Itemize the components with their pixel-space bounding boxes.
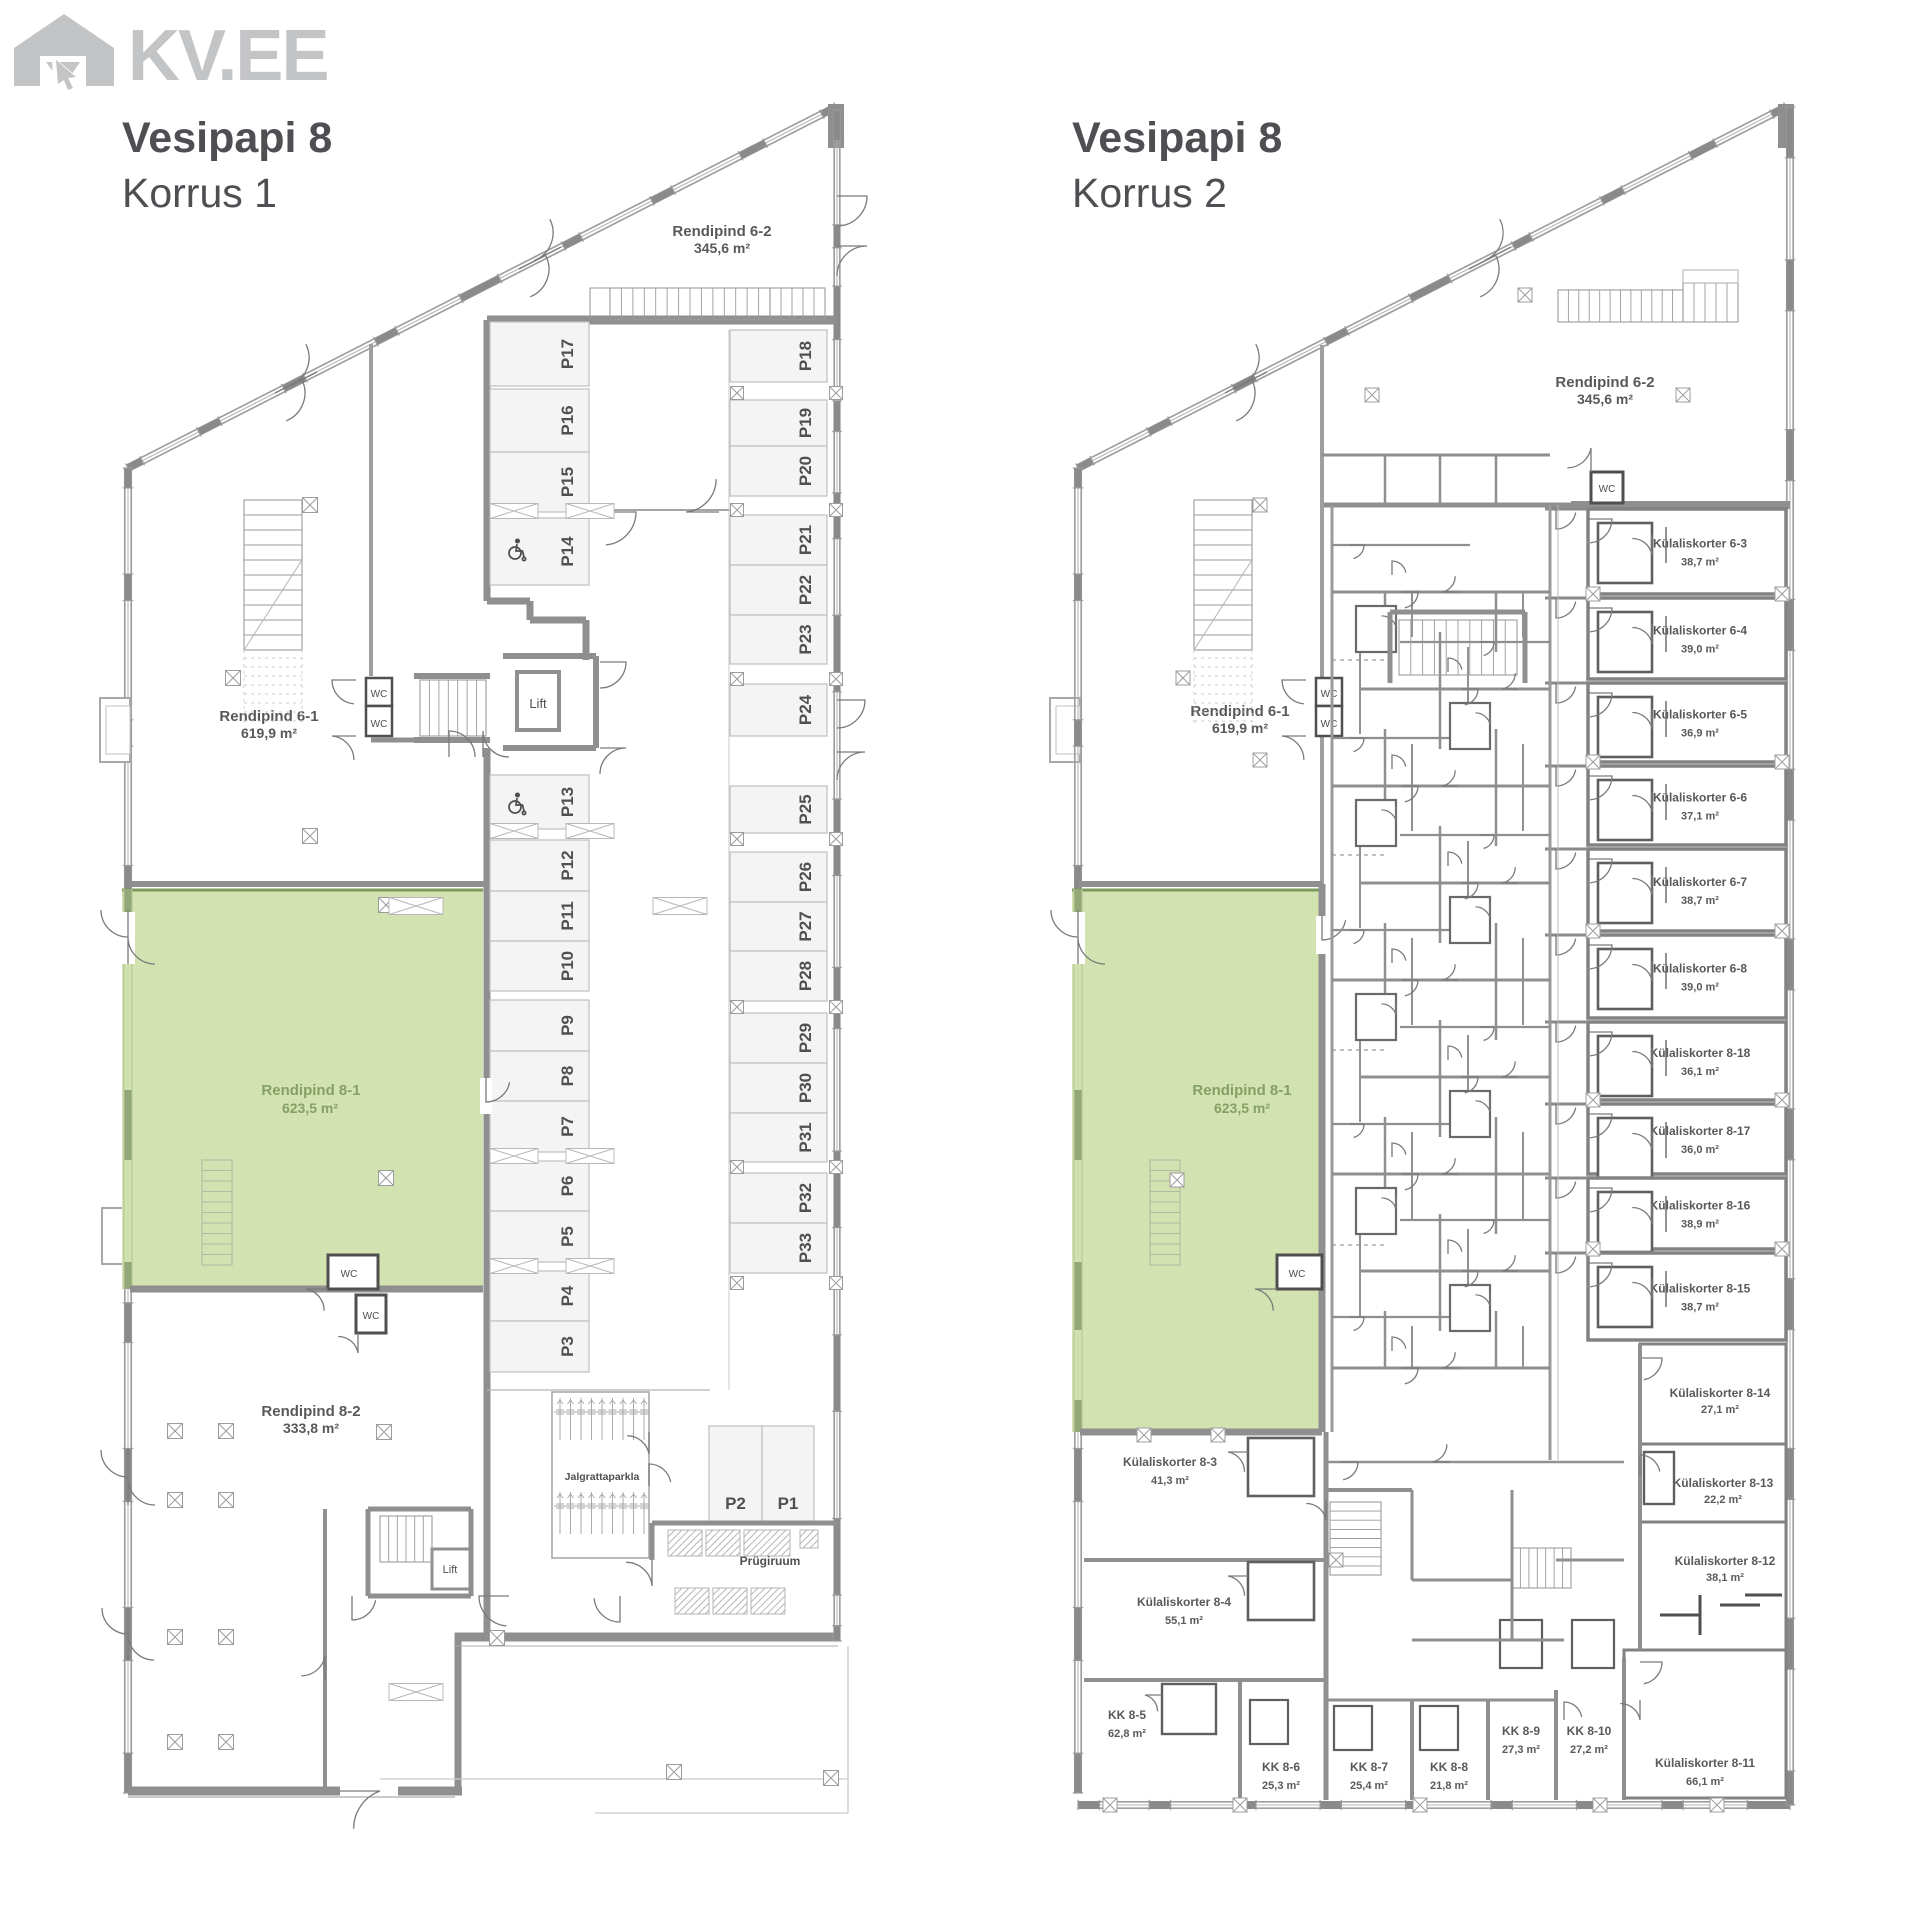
svg-text:Lift: Lift: [443, 1564, 458, 1576]
svg-text:Vesipapi 8: Vesipapi 8: [122, 114, 332, 162]
svg-text:P25: P25: [796, 794, 815, 824]
svg-text:P12: P12: [558, 850, 577, 880]
svg-text:Külaliskorter 6-7: Külaliskorter 6-7: [1653, 875, 1747, 889]
svg-text:Külaliskorter 8-4: Külaliskorter 8-4: [1137, 1595, 1231, 1609]
svg-text:P11: P11: [558, 901, 577, 930]
svg-text:623,5 m²: 623,5 m²: [1214, 1100, 1270, 1116]
svg-text:Rendipind 6-1: Rendipind 6-1: [1190, 703, 1289, 720]
svg-text:KK 8-6: KK 8-6: [1262, 1760, 1300, 1774]
svg-text:22,2 m²: 22,2 m²: [1704, 1494, 1742, 1506]
svg-text:P16: P16: [558, 405, 577, 435]
svg-text:Rendipind 6-2: Rendipind 6-2: [672, 223, 771, 240]
svg-text:619,9 m²: 619,9 m²: [241, 725, 297, 741]
svg-text:KK 8-9: KK 8-9: [1502, 1724, 1540, 1738]
svg-text:P21: P21: [796, 525, 815, 555]
svg-text:Jalgrattaparkla: Jalgrattaparkla: [565, 1471, 640, 1483]
svg-text:27,1 m²: 27,1 m²: [1701, 1404, 1739, 1416]
svg-text:Rendipind 6-1: Rendipind 6-1: [219, 708, 318, 725]
svg-text:P9: P9: [558, 1015, 577, 1036]
svg-text:Külaliskorter 6-5: Külaliskorter 6-5: [1653, 708, 1747, 722]
svg-text:27,3 m²: 27,3 m²: [1502, 1744, 1540, 1756]
svg-text:Rendipind 8-2: Rendipind 8-2: [261, 1403, 360, 1420]
svg-text:Korrus 1: Korrus 1: [122, 170, 277, 216]
svg-text:619,9 m²: 619,9 m²: [1212, 720, 1268, 736]
svg-text:36,1 m²: 36,1 m²: [1681, 1066, 1719, 1078]
svg-text:38,9 m²: 38,9 m²: [1681, 1219, 1719, 1231]
svg-text:KK 8-8: KK 8-8: [1430, 1760, 1468, 1774]
svg-text:Korrus 2: Korrus 2: [1072, 170, 1227, 216]
svg-text:P29: P29: [796, 1023, 815, 1053]
svg-text:WC: WC: [1599, 484, 1616, 495]
svg-text:Külaliskorter 8-16: Külaliskorter 8-16: [1650, 1199, 1751, 1213]
svg-text:Külaliskorter 6-6: Külaliskorter 6-6: [1653, 791, 1747, 805]
svg-text:37,1 m²: 37,1 m²: [1681, 811, 1719, 823]
svg-text:WC: WC: [363, 1311, 380, 1322]
svg-text:P5: P5: [558, 1226, 577, 1247]
svg-text:KK 8-5: KK 8-5: [1108, 1708, 1146, 1722]
svg-text:38,7 m²: 38,7 m²: [1681, 1302, 1719, 1314]
svg-text:P20: P20: [796, 456, 815, 486]
svg-text:P23: P23: [796, 624, 815, 654]
svg-text:Lift: Lift: [529, 696, 547, 711]
svg-text:P6: P6: [558, 1176, 577, 1197]
svg-text:WC: WC: [1321, 719, 1338, 730]
svg-text:P22: P22: [796, 575, 815, 605]
svg-text:55,1 m²: 55,1 m²: [1165, 1615, 1203, 1627]
svg-text:WC: WC: [341, 1269, 358, 1280]
svg-text:P8: P8: [558, 1066, 577, 1087]
svg-text:Rendipind 8-1: Rendipind 8-1: [1192, 1082, 1291, 1099]
svg-text:66,1 m²: 66,1 m²: [1686, 1776, 1724, 1788]
svg-text:Külaliskorter 8-12: Külaliskorter 8-12: [1675, 1554, 1776, 1568]
svg-text:KK 8-7: KK 8-7: [1350, 1760, 1388, 1774]
svg-text:P33: P33: [796, 1233, 815, 1263]
svg-text:P4: P4: [558, 1285, 577, 1306]
svg-text:623,5 m²: 623,5 m²: [282, 1100, 338, 1116]
svg-text:Külaliskorter 8-3: Külaliskorter 8-3: [1123, 1455, 1217, 1469]
svg-text:P28: P28: [796, 961, 815, 991]
svg-text:25,3 m²: 25,3 m²: [1262, 1780, 1300, 1792]
svg-text:P7: P7: [558, 1116, 577, 1137]
svg-text:P24: P24: [796, 694, 815, 725]
svg-text:Külaliskorter 8-18: Külaliskorter 8-18: [1650, 1046, 1751, 1060]
svg-text:P26: P26: [796, 862, 815, 892]
svg-text:39,0 m²: 39,0 m²: [1681, 982, 1719, 994]
svg-text:Vesipapi 8: Vesipapi 8: [1072, 114, 1282, 162]
svg-text:62,8 m²: 62,8 m²: [1108, 1728, 1146, 1740]
svg-text:P31: P31: [796, 1122, 815, 1152]
svg-text:38,7 m²: 38,7 m²: [1681, 557, 1719, 569]
svg-text:P19: P19: [796, 408, 815, 438]
svg-text:41,3 m²: 41,3 m²: [1151, 1475, 1189, 1487]
svg-text:KV.EE: KV.EE: [128, 16, 327, 96]
svg-text:P13: P13: [558, 787, 577, 817]
svg-text:WC: WC: [1321, 689, 1338, 700]
svg-text:38,1 m²: 38,1 m²: [1706, 1572, 1744, 1584]
svg-text:36,9 m²: 36,9 m²: [1681, 728, 1719, 740]
svg-text:Külaliskorter 6-8: Külaliskorter 6-8: [1653, 962, 1747, 976]
svg-text:Külaliskorter 8-14: Külaliskorter 8-14: [1670, 1386, 1771, 1400]
svg-text:P15: P15: [558, 467, 577, 497]
svg-text:38,7 m²: 38,7 m²: [1681, 895, 1719, 907]
svg-text:P2: P2: [725, 1494, 746, 1513]
svg-text:WC: WC: [371, 719, 388, 730]
svg-text:Külaliskorter 6-4: Külaliskorter 6-4: [1653, 624, 1747, 638]
svg-text:36,0 m²: 36,0 m²: [1681, 1144, 1719, 1156]
svg-text:345,6 m²: 345,6 m²: [694, 240, 750, 256]
svg-text:P3: P3: [558, 1336, 577, 1357]
svg-text:345,6 m²: 345,6 m²: [1577, 391, 1633, 407]
svg-text:27,2 m²: 27,2 m²: [1570, 1744, 1608, 1756]
svg-text:P17: P17: [558, 339, 577, 369]
svg-text:25,4 m²: 25,4 m²: [1350, 1780, 1388, 1792]
svg-text:39,0 m²: 39,0 m²: [1681, 644, 1719, 656]
svg-text:P32: P32: [796, 1183, 815, 1213]
svg-text:Külaliskorter 6-3: Külaliskorter 6-3: [1653, 537, 1747, 551]
svg-text:Külaliskorter 8-17: Külaliskorter 8-17: [1650, 1124, 1751, 1138]
svg-text:Külaliskorter 8-11: Külaliskorter 8-11: [1655, 1756, 1755, 1770]
svg-text:Rendipind 6-2: Rendipind 6-2: [1555, 374, 1654, 391]
svg-text:Prügiruum: Prügiruum: [740, 1554, 801, 1568]
svg-text:Külaliskorter 8-15: Külaliskorter 8-15: [1650, 1282, 1751, 1296]
svg-text:333,8 m²: 333,8 m²: [283, 1420, 339, 1436]
svg-text:WC: WC: [371, 689, 388, 700]
svg-text:P30: P30: [796, 1073, 815, 1103]
svg-text:21,8 m²: 21,8 m²: [1430, 1780, 1468, 1792]
svg-text:KK 8-10: KK 8-10: [1567, 1724, 1612, 1738]
svg-text:P1: P1: [778, 1494, 799, 1513]
svg-text:P10: P10: [558, 951, 577, 981]
svg-text:Rendipind 8-1: Rendipind 8-1: [261, 1082, 360, 1099]
svg-text:WC: WC: [1289, 1269, 1306, 1280]
svg-text:P27: P27: [796, 911, 815, 941]
svg-text:Külaliskorter 8-13: Külaliskorter 8-13: [1673, 1476, 1774, 1490]
svg-text:P18: P18: [796, 341, 815, 371]
svg-text:P14: P14: [558, 536, 577, 567]
